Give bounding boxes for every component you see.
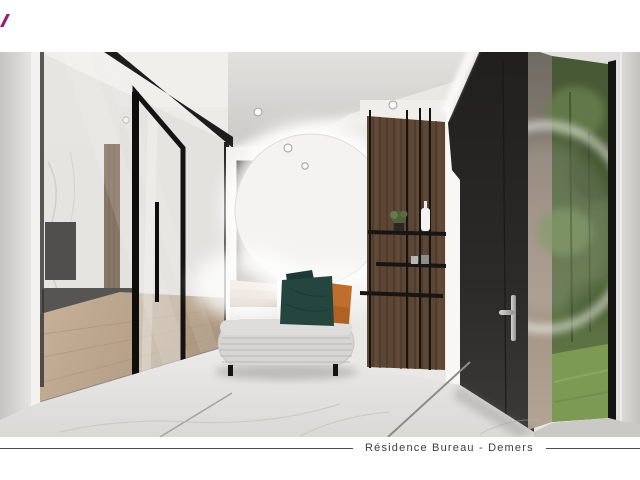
caption-rule-left: [0, 448, 353, 449]
plant-leaves: [401, 211, 408, 218]
right-trim-wall: [616, 52, 640, 437]
glass-door-handle: [155, 202, 159, 302]
glass-door-near-stile: [132, 92, 139, 417]
plant-pot: [394, 223, 404, 231]
partition-left-frame: [40, 52, 44, 387]
plant-leaves: [390, 211, 398, 219]
vase-neck: [424, 201, 427, 210]
caption-rule-right: [546, 448, 640, 449]
left-wall-trim: [31, 52, 40, 437]
cup: [411, 256, 418, 264]
presentation-page: { "page": { "background": "#ffffff" }, "…: [0, 0, 640, 480]
cup: [421, 255, 429, 264]
caption-title: Résidence Bureau - Demers: [365, 442, 534, 454]
black-entry-door: [448, 52, 534, 432]
magenta-slash-logo-fragment: [0, 12, 14, 28]
white-vase: [421, 208, 430, 231]
interior-rendering-image: [0, 52, 640, 437]
window-frame: [608, 60, 616, 420]
rendering-scene: [0, 52, 640, 437]
logo-slash-icon: [0, 14, 10, 27]
door-handle-lever: [499, 310, 514, 315]
caption-bar: Résidence Bureau - Demers: [0, 440, 640, 456]
bench-leg: [333, 364, 338, 376]
bench-leg: [228, 365, 233, 376]
grass: [552, 344, 608, 422]
teal-cushion: [280, 276, 334, 326]
silver-door-handle: [511, 295, 516, 341]
